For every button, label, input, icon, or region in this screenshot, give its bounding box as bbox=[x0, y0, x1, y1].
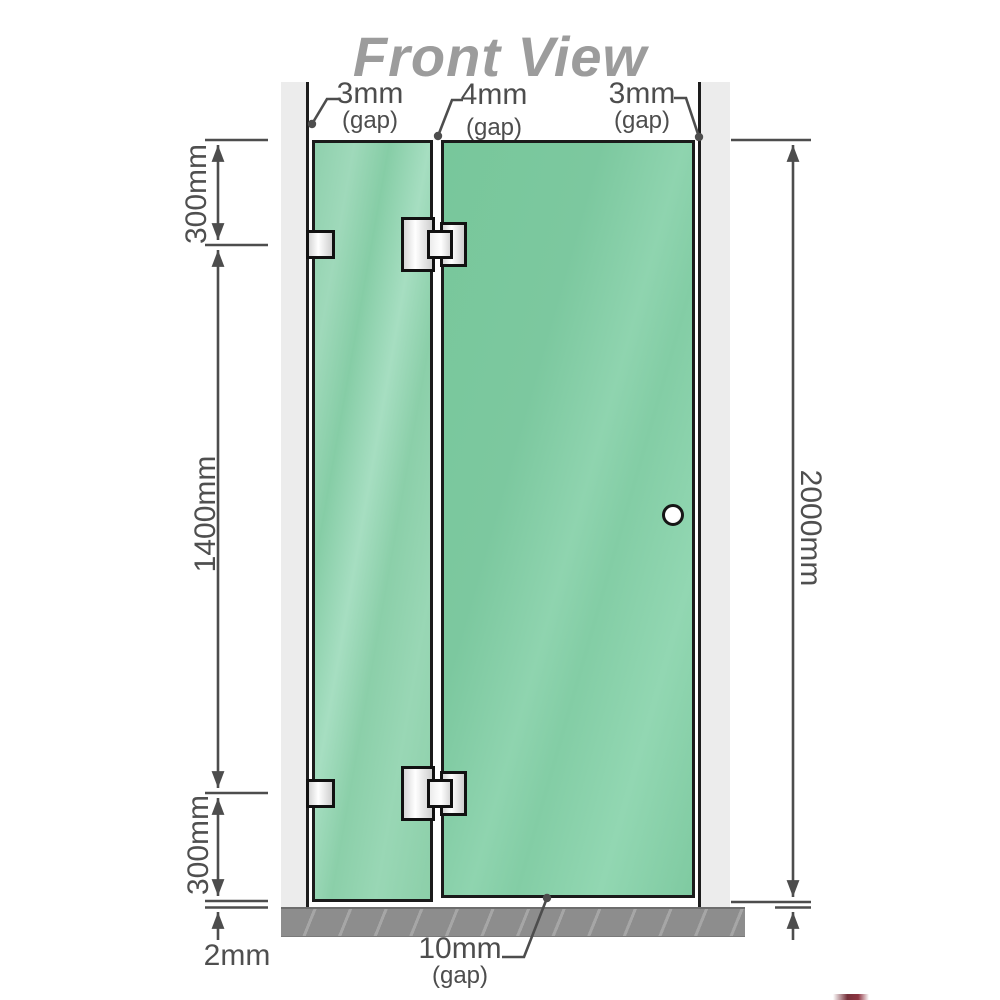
dim-label-1400mm: 1400mm bbox=[189, 456, 223, 573]
gap-label-top-right: 3mm (gap) bbox=[609, 79, 676, 133]
leader-dot-mid bbox=[434, 132, 442, 140]
logo-fragment bbox=[833, 994, 869, 1000]
gap-value: 3mm bbox=[609, 79, 676, 109]
hinge-top-knuckle-icon bbox=[427, 230, 453, 259]
dim-label-2mm: 2mm bbox=[204, 939, 271, 973]
gap-value: 10mm bbox=[418, 934, 501, 964]
left-wall bbox=[281, 82, 309, 907]
door-glass-panel bbox=[441, 140, 695, 898]
gap-value: 3mm bbox=[337, 79, 404, 109]
gap-label-bottom: 10mm (gap) bbox=[418, 934, 501, 988]
shower-screen-front-view-diagram: Front View bbox=[0, 0, 1000, 1000]
leader-gap-right bbox=[674, 98, 699, 137]
gap-suffix: (gap) bbox=[418, 964, 501, 988]
floor-base bbox=[281, 907, 745, 937]
floor-hatch-pattern bbox=[281, 909, 745, 936]
dim-label-top-300mm: 300mm bbox=[180, 144, 214, 244]
leader-dot-left bbox=[308, 120, 316, 128]
door-knob-icon bbox=[662, 504, 684, 526]
leader-gap-mid bbox=[438, 100, 463, 136]
gap-label-top-left: 3mm (gap) bbox=[337, 79, 404, 133]
hinge-bottom-knuckle-icon bbox=[427, 779, 453, 808]
gap-label-top-middle: 4mm (gap) bbox=[461, 80, 528, 140]
wall-bracket-bottom-icon bbox=[306, 779, 335, 808]
gap-suffix: (gap) bbox=[609, 109, 676, 133]
right-wall bbox=[698, 82, 730, 907]
gap-suffix: (gap) bbox=[337, 109, 404, 133]
gap-value: 4mm bbox=[461, 80, 528, 110]
dim-label-2000mm: 2000mm bbox=[793, 470, 827, 587]
wall-bracket-top-icon bbox=[306, 230, 335, 259]
gap-suffix: (gap) bbox=[461, 116, 528, 140]
dim-label-bottom-300mm: 300mm bbox=[182, 795, 216, 895]
